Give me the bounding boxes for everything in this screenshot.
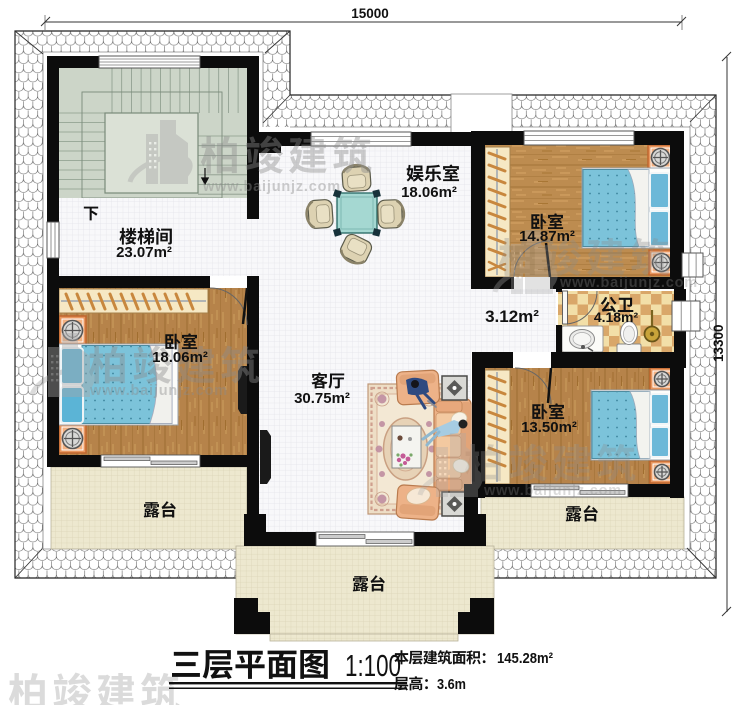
svg-text:www.baijunjz.com: www.baijunjz.com [559,275,698,291]
svg-text:14.87m²: 14.87m² [519,228,575,245]
svg-text:23.07m²: 23.07m² [116,244,172,261]
svg-text:13300: 13300 [711,324,726,362]
svg-text:3.6m: 3.6m [437,676,466,693]
svg-text:18.06m²: 18.06m² [152,349,208,366]
svg-text:13.50m²: 13.50m² [521,419,577,436]
svg-text:15000: 15000 [351,6,389,21]
svg-text:18.06m²: 18.06m² [401,184,457,201]
svg-text:www.baijunjz.com: www.baijunjz.com [202,179,341,195]
svg-text:www.baijunjz.com: www.baijunjz.com [89,383,228,399]
svg-text:30.75m²: 30.75m² [294,390,350,407]
svg-text:3.12m²: 3.12m² [485,307,539,326]
svg-text:4.18m²: 4.18m² [594,309,639,325]
svg-text:145.28m²: 145.28m² [497,650,553,667]
svg-text:www.baijunjz.com: www.baijunjz.com [483,483,622,499]
svg-text:1:100: 1:100 [345,648,401,683]
